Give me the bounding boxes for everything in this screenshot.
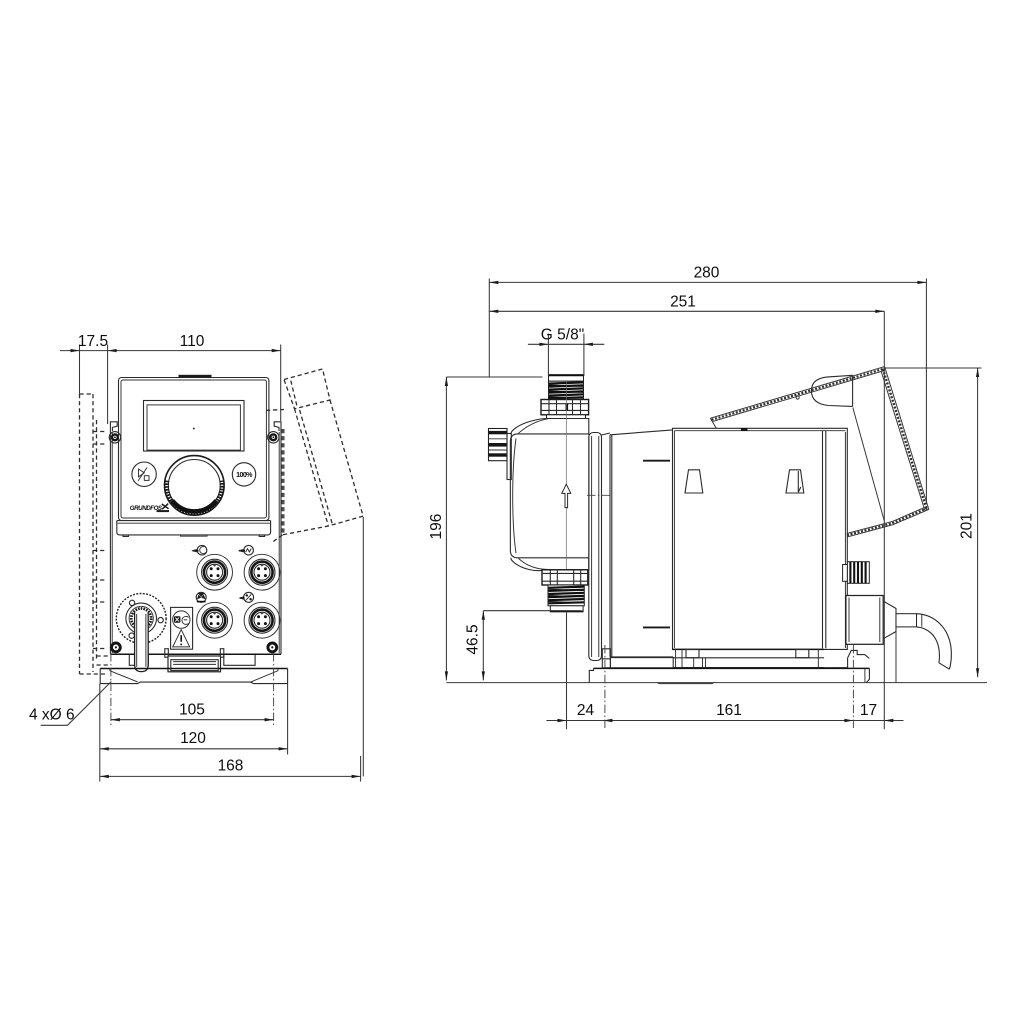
svg-text:251: 251 — [670, 293, 696, 310]
svg-text:100%: 100% — [236, 471, 253, 479]
svg-text:120: 120 — [180, 730, 206, 747]
svg-text:4 xØ 6: 4 xØ 6 — [29, 707, 75, 724]
svg-text:161: 161 — [716, 702, 742, 719]
svg-text:110: 110 — [180, 333, 205, 350]
svg-text:201: 201 — [959, 513, 976, 539]
svg-text:168: 168 — [218, 758, 244, 775]
svg-text:105: 105 — [179, 702, 205, 719]
svg-text:280: 280 — [694, 265, 720, 282]
svg-text:24: 24 — [577, 702, 595, 719]
svg-text:46.5: 46.5 — [465, 624, 482, 654]
svg-text:17.5: 17.5 — [78, 333, 108, 350]
svg-text:G 5/8": G 5/8" — [541, 327, 584, 344]
svg-text:17: 17 — [860, 702, 877, 719]
svg-text:196: 196 — [428, 514, 445, 540]
